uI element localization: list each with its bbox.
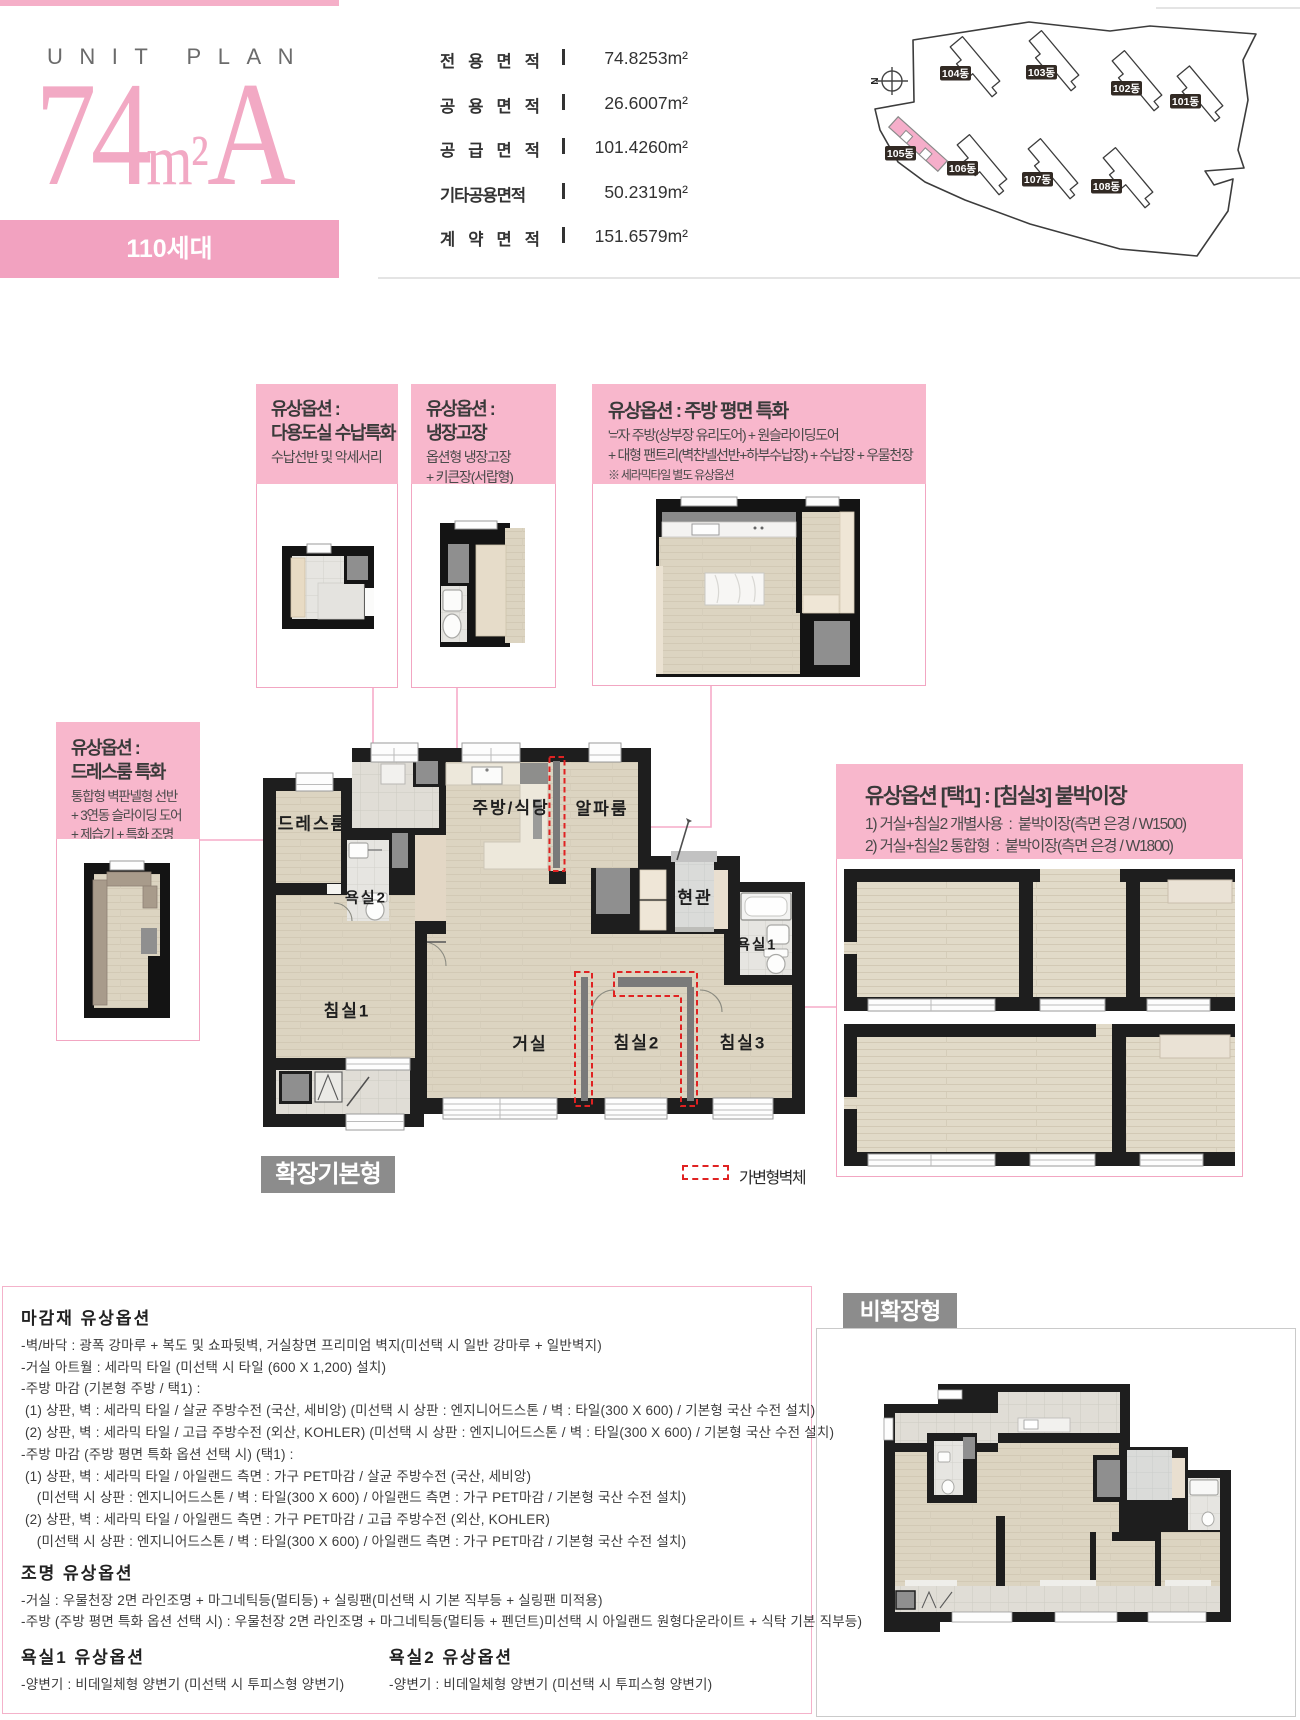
svg-text:N: N (870, 77, 881, 84)
svg-text:108동: 108동 (1093, 181, 1121, 193)
svg-text:104동: 104동 (942, 68, 970, 80)
svg-text:107동: 107동 (1024, 174, 1052, 186)
svg-text:105동: 105동 (887, 148, 915, 160)
svg-text:102동: 102동 (1113, 83, 1141, 95)
svg-text:106동: 106동 (949, 163, 977, 175)
svg-text:103동: 103동 (1028, 67, 1056, 79)
svg-text:101동: 101동 (1172, 96, 1200, 108)
